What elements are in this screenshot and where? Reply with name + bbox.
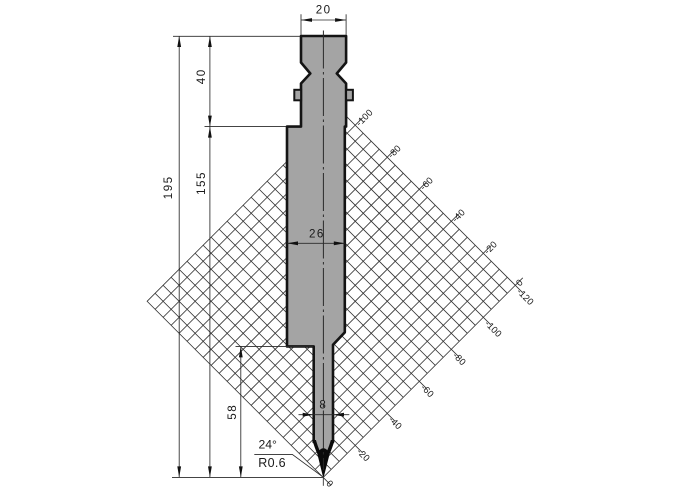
svg-text:20: 20 <box>316 4 332 17</box>
svg-text:40: 40 <box>195 68 208 84</box>
svg-text:8: 8 <box>319 399 327 412</box>
svg-text:58: 58 <box>226 404 239 420</box>
svg-text:26: 26 <box>309 227 325 240</box>
svg-text:195: 195 <box>162 175 175 199</box>
svg-text:R0.6: R0.6 <box>258 456 286 470</box>
svg-text:24°: 24° <box>259 438 278 452</box>
svg-text:155: 155 <box>195 171 208 195</box>
